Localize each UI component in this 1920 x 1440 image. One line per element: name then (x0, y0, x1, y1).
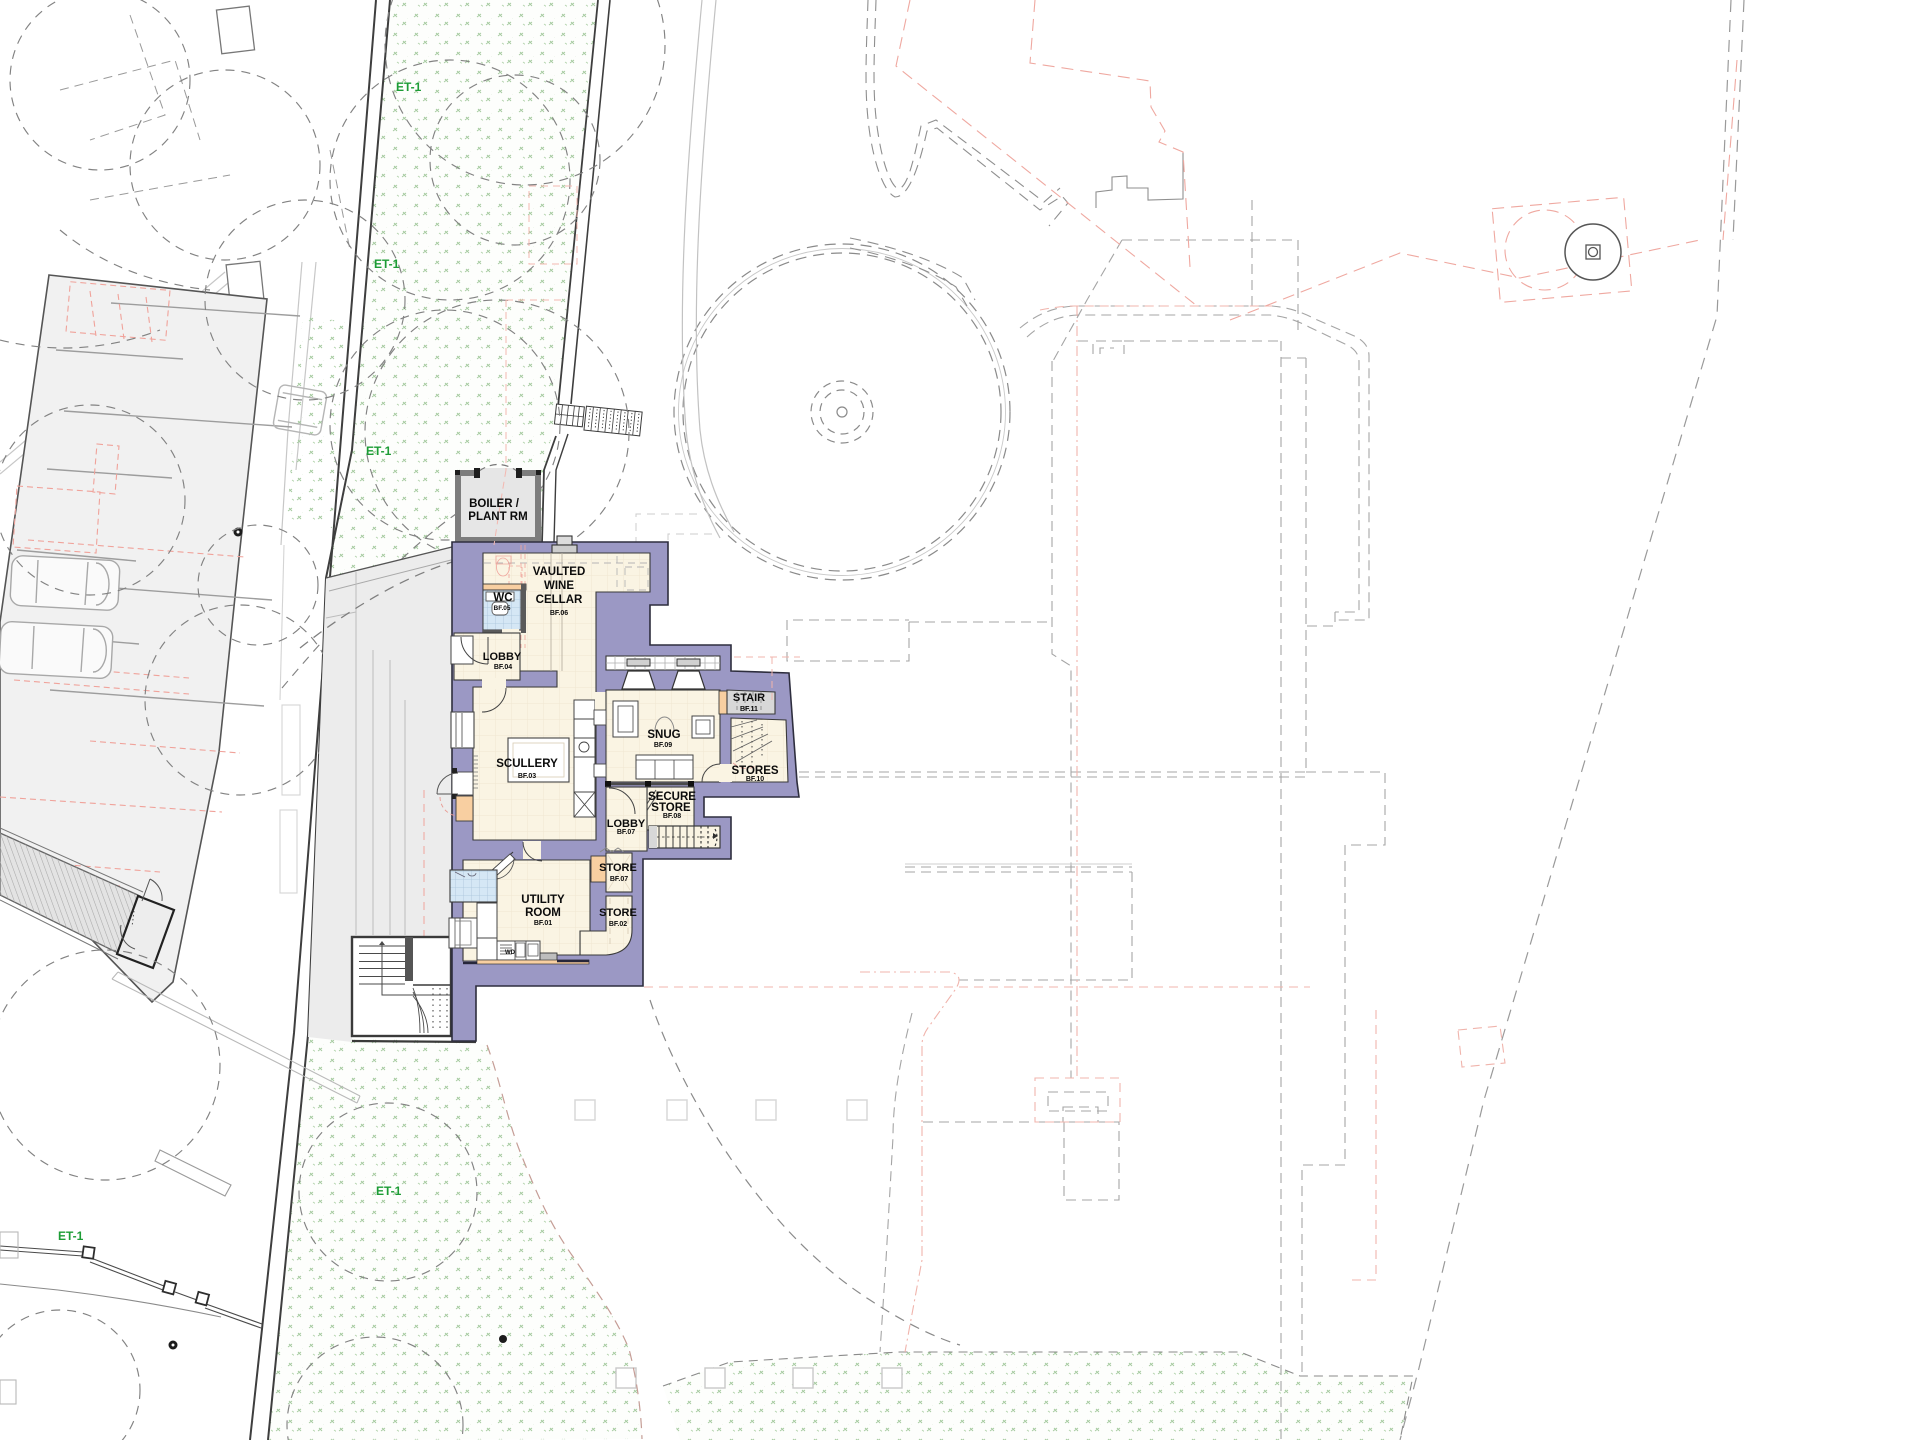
svg-text:ET-1: ET-1 (366, 444, 392, 458)
svg-text:CELLAR: CELLAR (536, 594, 583, 606)
svg-text:ET-1: ET-1 (374, 257, 400, 271)
svg-text:ET-1: ET-1 (376, 1184, 402, 1198)
svg-text:WINE: WINE (544, 580, 574, 592)
svg-text:WD: WD (505, 950, 516, 956)
svg-text:ET-1: ET-1 (396, 80, 422, 94)
svg-text:STAIR: STAIR (733, 692, 765, 704)
svg-text:STORE: STORE (599, 907, 637, 919)
svg-text:BF.11: BF.11 (740, 706, 758, 713)
svg-text:SNUG: SNUG (647, 729, 680, 741)
svg-text:BF.05: BF.05 (494, 605, 511, 612)
svg-text:BF.09: BF.09 (654, 742, 672, 749)
svg-text:SCULLERY: SCULLERY (496, 758, 558, 770)
svg-text:LOBBY: LOBBY (483, 651, 522, 663)
svg-text:BF.04: BF.04 (494, 664, 512, 671)
svg-text:ROOM: ROOM (525, 907, 561, 919)
svg-text:WC: WC (493, 592, 512, 604)
svg-text:BF.03: BF.03 (518, 773, 536, 780)
svg-text:BF.06: BF.06 (550, 610, 568, 617)
svg-text:UTILITY: UTILITY (521, 894, 565, 906)
svg-text:BF.10: BF.10 (746, 776, 764, 783)
svg-text:VAULTED: VAULTED (533, 566, 586, 578)
svg-text:BF.01: BF.01 (534, 920, 552, 927)
svg-text:BF.07: BF.07 (617, 829, 635, 836)
svg-text:BOILER /: BOILER / (469, 498, 520, 510)
svg-text:PLANT RM: PLANT RM (468, 511, 527, 523)
svg-text:BF.08: BF.08 (663, 813, 681, 820)
svg-text:BF.02: BF.02 (609, 921, 627, 928)
svg-text:ET-1: ET-1 (58, 1229, 84, 1243)
svg-text:STORE: STORE (599, 862, 637, 874)
svg-text:BF.07: BF.07 (610, 876, 628, 883)
